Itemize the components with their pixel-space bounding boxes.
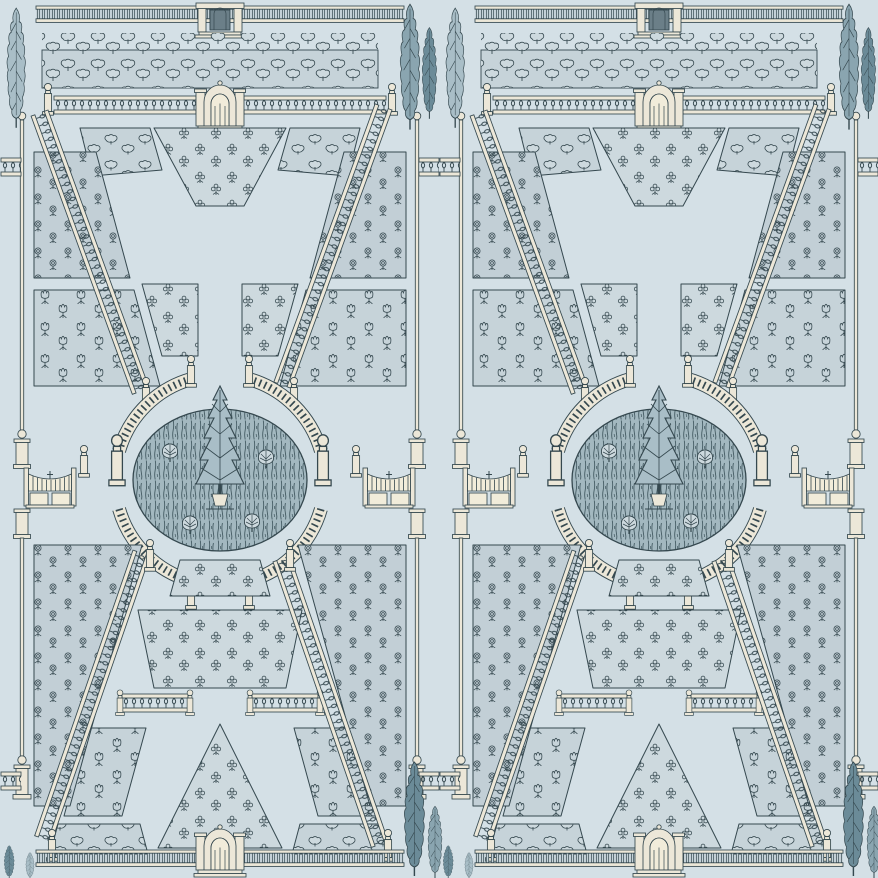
garden-toile-wallpaper <box>0 0 878 878</box>
wallpaper-canvas <box>0 0 878 878</box>
